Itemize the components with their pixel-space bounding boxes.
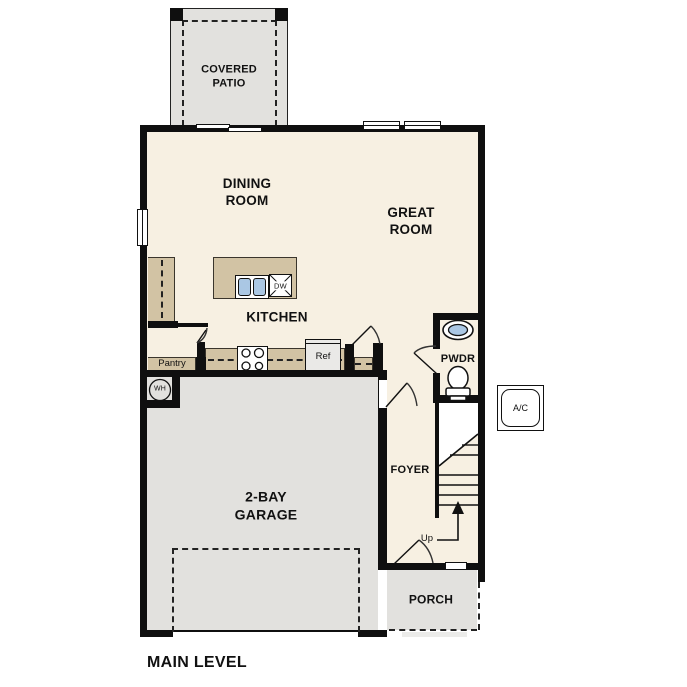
water-heater-label: WH xyxy=(154,386,166,395)
room-label-dining: DINING ROOM xyxy=(212,176,282,210)
room-label-kitchen: KITCHEN xyxy=(246,310,307,327)
stove-burners-icon xyxy=(242,349,264,371)
plan-title: MAIN LEVEL xyxy=(147,654,247,672)
ac-label: A/C xyxy=(513,403,528,413)
closet-door xyxy=(352,326,380,345)
powder-room-door xyxy=(414,346,437,374)
garage-foyer-door xyxy=(386,383,417,407)
dishwasher-label: DW xyxy=(273,281,288,290)
stairs-up-label: Up xyxy=(421,533,433,545)
ac-unit-inner: A/C xyxy=(501,389,540,427)
room-label-pwdr: PWDR xyxy=(441,353,475,367)
pantry-door xyxy=(197,328,207,343)
toilet-icon xyxy=(446,367,470,401)
room-label-great: GREAT ROOM xyxy=(381,205,441,239)
staircase xyxy=(437,403,478,540)
ac-unit: A/C xyxy=(497,385,544,431)
room-label-garage: 2-BAY GARAGE xyxy=(219,489,314,524)
pwdr-sink-icon xyxy=(443,321,473,340)
linework-layer xyxy=(0,0,687,687)
room-label-covered-patio: COVERED PATIO xyxy=(189,63,269,91)
room-label-porch: PORCH xyxy=(409,593,453,608)
room-label-pantry: Pantry xyxy=(158,358,185,370)
room-label-foyer: FOYER xyxy=(391,464,430,478)
refrigerator-label: Ref xyxy=(316,351,331,363)
floor-plan: A/C COVERED PATIO DINING ROOM GREAT ROOM… xyxy=(0,0,687,687)
up-arrow-icon xyxy=(437,501,464,540)
stairs-upper-cut xyxy=(439,403,478,466)
